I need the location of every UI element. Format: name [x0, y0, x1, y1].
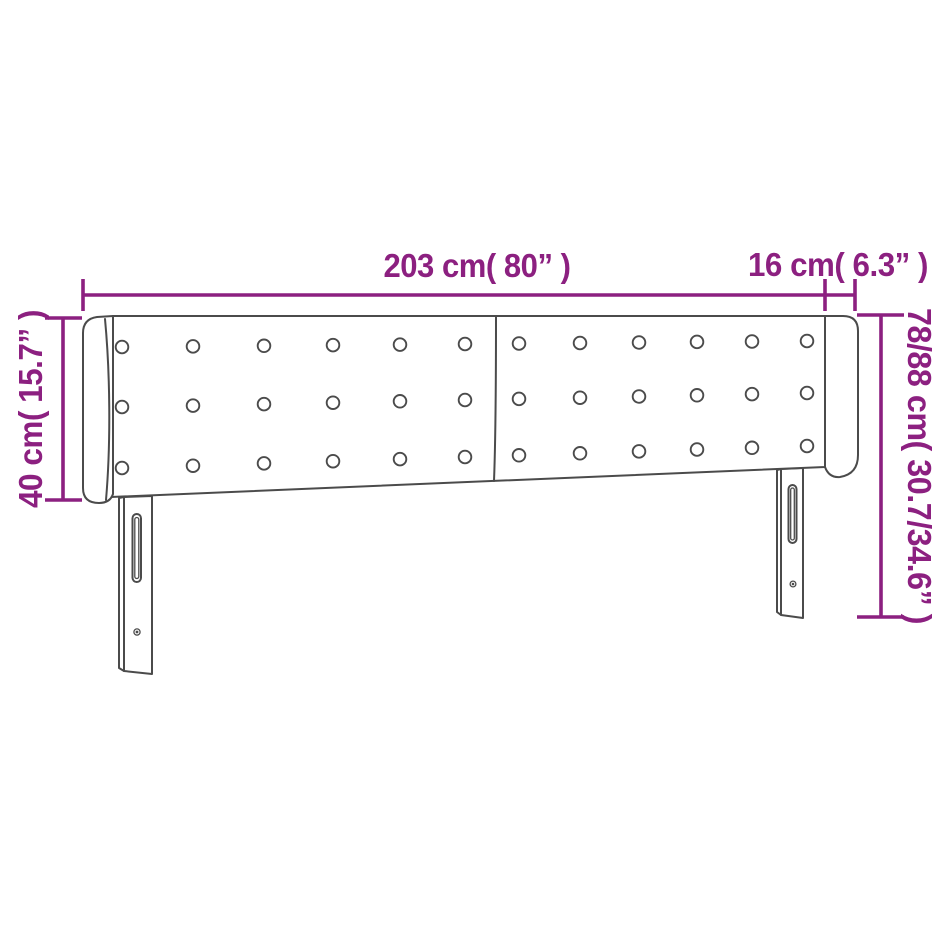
tufting-button	[691, 336, 704, 349]
total-height-label: 78/88 cm( 30.7/34.6” )	[901, 308, 938, 624]
tufting-button	[327, 455, 340, 468]
tufting-button	[513, 393, 526, 406]
tufting-button	[801, 440, 814, 453]
tufting-button	[513, 449, 526, 462]
right-leg	[777, 468, 803, 618]
tufting-button	[746, 442, 759, 455]
tufting-button	[691, 389, 704, 402]
tufting-button	[187, 399, 200, 412]
tufting-button	[327, 396, 340, 409]
width-dimension-label: 203 cm( 80” )	[384, 247, 571, 284]
tufting-button	[116, 462, 129, 475]
tufting-button	[394, 453, 407, 466]
tufting-button	[801, 335, 814, 348]
tufting-button	[513, 337, 526, 350]
total-height-dimension: 78/88 cm( 30.7/34.6” )	[857, 308, 938, 624]
tufting-button	[327, 339, 340, 352]
tufting-button	[574, 391, 587, 404]
left-leg-screw-dot	[136, 631, 139, 634]
headboard-illustration	[83, 316, 858, 674]
tufting-button	[116, 341, 129, 354]
tufting-button	[801, 387, 814, 400]
right-leg-screw-dot	[792, 583, 795, 586]
headboard-height-dimension: 40 cm( 15.7” )	[12, 310, 82, 508]
tufting-button	[394, 395, 407, 408]
tufting-button	[633, 445, 646, 458]
left-leg	[119, 496, 152, 674]
tufting-button	[574, 447, 587, 460]
tufting-button	[459, 451, 472, 464]
headboard-height-label: 40 cm( 15.7” )	[12, 310, 49, 508]
tufting-button	[394, 338, 407, 351]
tufting-button	[258, 398, 271, 411]
tufting-button	[459, 338, 472, 351]
tufting-button	[746, 335, 759, 348]
right-wing	[825, 316, 858, 477]
tufting-button	[633, 390, 646, 403]
headboard-dimension-illustration: 203 cm( 80” ) 16 cm( 6.3” ) 40 cm( 15.7”…	[0, 0, 947, 947]
tufting-button	[187, 340, 200, 353]
wing-depth-dimension-label: 16 cm( 6.3” )	[748, 246, 928, 283]
left-leg-front-face	[124, 496, 152, 674]
tufting-button	[187, 459, 200, 472]
tufting-button	[116, 401, 129, 414]
tufting-button	[574, 337, 587, 350]
tufting-button	[258, 457, 271, 470]
tufting-button	[691, 443, 704, 456]
diagram-canvas: 203 cm( 80” ) 16 cm( 6.3” ) 40 cm( 15.7”…	[0, 0, 947, 947]
width-dimension: 203 cm( 80” ) 16 cm( 6.3” )	[83, 246, 928, 311]
tufting-button	[633, 336, 646, 349]
tufting-button	[258, 340, 271, 353]
tufting-button	[746, 388, 759, 401]
tufting-button	[459, 394, 472, 407]
